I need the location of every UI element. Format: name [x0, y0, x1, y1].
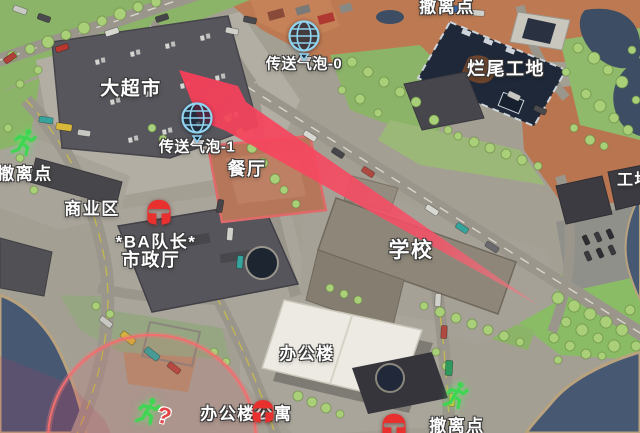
school-label: 学校 [389, 234, 434, 264]
business-district-label: 商业区 [64, 195, 120, 220]
evac-bottom-label: 撤离点 [429, 412, 485, 433]
teleport-globe-icon-1[interactable] [179, 100, 215, 144]
game-minimap[interactable]: 撤离点 烂尾工地 传送气泡-0 大超市 传送气泡-1 撤离点 餐厅 商业区 *B… [0, 0, 640, 433]
city-hall-label: 市政厅 [122, 246, 181, 272]
supermarket-label: 大超市 [100, 74, 162, 101]
office-main-label: 办公楼 [279, 340, 335, 365]
evac-running-man-icon-bottom[interactable] [440, 380, 472, 412]
worksite-right-label: 工地 [617, 166, 640, 190]
player-helmet-icon-shore[interactable] [379, 412, 409, 433]
player-helmet-icon-captain[interactable] [144, 198, 174, 228]
construction-site-label: 烂尾工地 [467, 55, 545, 81]
office-bottom-label: 办公楼 [200, 400, 256, 425]
teleport-globe-icon-0[interactable] [286, 18, 322, 62]
player-helmet-icon-office[interactable] [250, 399, 277, 426]
evac-left-label: 撤离点 [0, 160, 53, 185]
evac-running-man-icon-left[interactable] [8, 127, 40, 159]
restaurant-label: 餐厅 [228, 155, 267, 181]
evac-top-label: 撤离点 [419, 0, 475, 18]
